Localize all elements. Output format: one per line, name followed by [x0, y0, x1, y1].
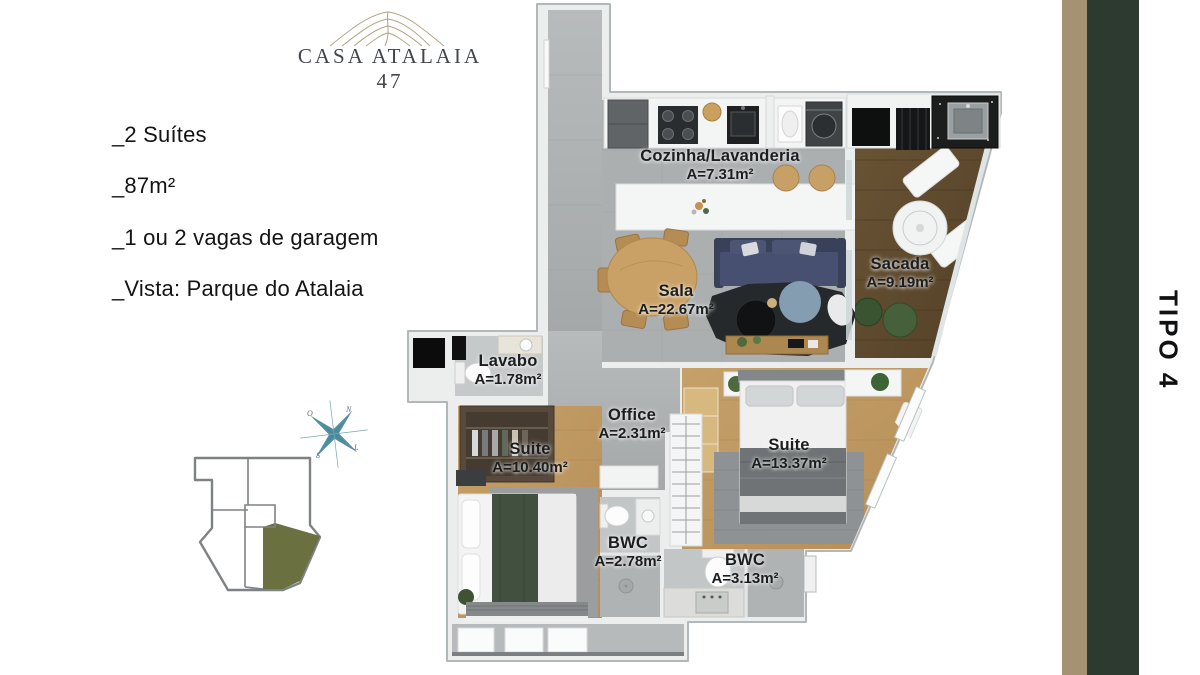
- room-label-sacada: Sacada A=9.19m²: [815, 255, 985, 291]
- sink: [520, 339, 532, 351]
- bathroom-sink: [636, 499, 660, 535]
- room-area: A=9.19m²: [815, 274, 985, 291]
- room-name: Suite: [704, 436, 874, 455]
- room-area: A=22.67m²: [591, 301, 761, 318]
- laundry-tub: [778, 106, 802, 142]
- room-name: Sala: [591, 282, 761, 301]
- compass-e: L: [353, 443, 359, 452]
- room-name: BWC: [660, 551, 830, 570]
- mountain-icon: [322, 6, 452, 48]
- building-key-plan: [183, 446, 333, 598]
- room-label-lavabo: Lavabo A=1.78m²: [423, 352, 593, 388]
- wall-divider: [766, 96, 774, 148]
- plant: [883, 303, 917, 337]
- glass-door: [846, 160, 852, 340]
- planter-box: [505, 628, 543, 652]
- shelf: [845, 370, 901, 396]
- room-label-office: Office A=2.31m²: [547, 406, 717, 442]
- plant: [871, 373, 889, 391]
- room-name: Suite: [445, 440, 615, 459]
- compass-w: O: [307, 409, 313, 418]
- room-label-suite-1: Suite A=10.40m²: [445, 440, 615, 476]
- room-name: Office: [547, 406, 717, 425]
- room-area: A=3.13m²: [660, 570, 830, 587]
- planter-strip: [452, 624, 684, 656]
- grill: [896, 108, 930, 150]
- room-label-cozinha: Cozinha/Lavanderia A=7.31m²: [635, 147, 805, 183]
- marketing-slide: CASA ATALAIA 47 _2 Suítes _87m² _1 ou 2 …: [0, 0, 1200, 675]
- vanity-counter: [664, 588, 744, 617]
- stove: [658, 106, 698, 144]
- room-name: Lavabo: [423, 352, 593, 371]
- room-name: Sacada: [815, 255, 985, 274]
- fruit-bowl: [703, 103, 721, 121]
- room-label-sala: Sala A=22.67m²: [591, 282, 761, 318]
- sacada: [846, 94, 1000, 358]
- tv-console: [726, 336, 828, 354]
- washing-machine: [806, 102, 842, 146]
- compass-n: N: [345, 405, 352, 414]
- room-area: A=10.40m²: [445, 459, 615, 476]
- plant: [854, 298, 882, 326]
- kitchen-counters: [604, 96, 846, 148]
- floor-plan: [0, 0, 1200, 675]
- room-area: A=1.78m²: [423, 371, 593, 388]
- room-area: A=7.31m²: [635, 166, 805, 183]
- kitchen-sink: [727, 106, 759, 144]
- entry-door: [544, 40, 549, 88]
- window-blind: [466, 602, 588, 621]
- bbq-counter: [847, 94, 1000, 150]
- room-label-suite-2: Suite A=13.37m²: [704, 436, 874, 472]
- room-area: A=13.37m²: [704, 455, 874, 472]
- planter-box: [548, 628, 587, 652]
- room-label-bwc-2: BWC A=3.13m²: [660, 551, 830, 587]
- room-name: Cozinha/Lavanderia: [635, 147, 805, 166]
- stool: [809, 165, 835, 191]
- planter-box: [458, 628, 494, 652]
